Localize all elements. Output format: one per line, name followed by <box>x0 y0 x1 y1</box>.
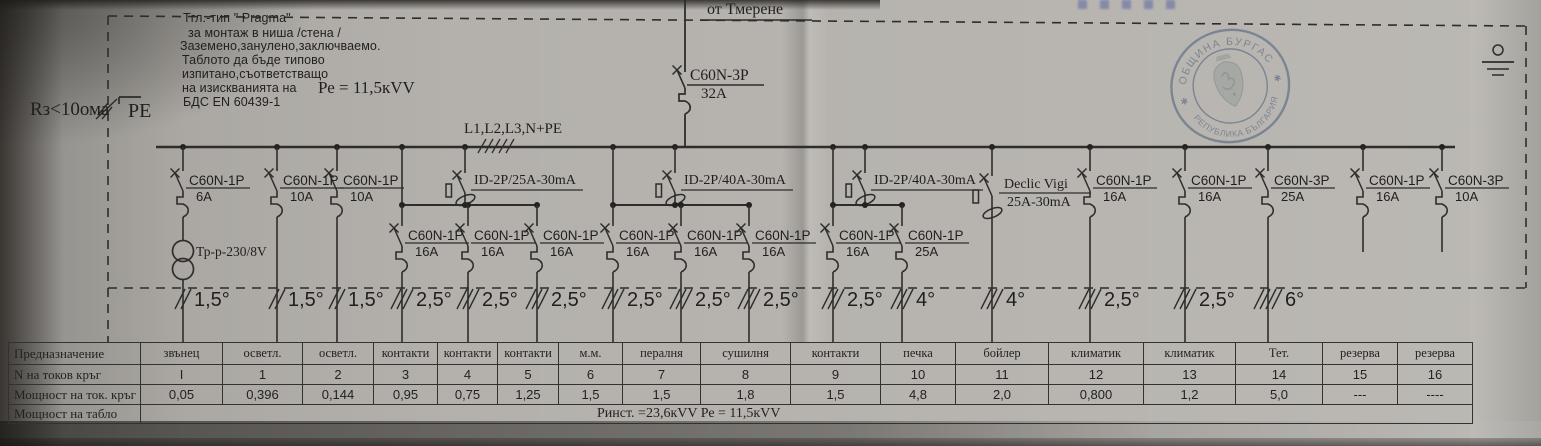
breaker-thermal-element <box>331 191 342 217</box>
table-circuit-number-cell: 16 <box>1398 365 1473 385</box>
table-row: Предназначениезвънецосветл.осветл.контак… <box>9 343 1473 365</box>
wire-section-hatch <box>526 289 536 309</box>
table-purpose-cell: бойлер <box>956 343 1049 365</box>
transformer-label: Тр-р-230/8V <box>196 245 267 259</box>
table-circuit-number-cell: 13 <box>1144 365 1236 385</box>
table-purpose-cell: климатик <box>1049 343 1144 365</box>
note-line: Таблото да бъде типово <box>182 54 325 67</box>
breaker-model-label: C60N-1P <box>839 229 895 243</box>
breaker-switch-diagonal <box>1260 173 1268 191</box>
table-purpose-cell: печка <box>881 343 956 365</box>
breaker-switch-diagonal <box>1434 173 1442 191</box>
table-circuit-number-cell: 2 <box>303 365 374 385</box>
wire-section-hatch <box>822 289 832 309</box>
table-circuit-number-cell: 5 <box>498 365 559 385</box>
vigi-model-label: Declic Vigi <box>1004 178 1068 193</box>
rcd-model-label: ID-2P/40A-30mA <box>684 174 786 189</box>
breaker-switch-diagonal <box>1082 173 1090 191</box>
wire-section-hatch <box>469 289 479 309</box>
breaker-thermal-element <box>743 246 754 272</box>
breaker-switch-diagonal <box>269 173 277 191</box>
breaker-model-label: C60N-3P <box>1274 174 1330 188</box>
table-power-cell: 0,800 <box>1049 385 1144 405</box>
table-row-label: N на токов кръг <box>9 365 141 385</box>
wire-size-label: 2,5° <box>1104 290 1140 311</box>
table-purpose-cell: контакти <box>374 343 438 365</box>
breaker-model-label: C60N-1P <box>408 229 464 243</box>
table-purpose-cell: пералня <box>623 343 701 365</box>
breaker-switch-diagonal <box>605 228 613 246</box>
breaker-rating-label: 6A <box>196 190 212 204</box>
wire-section-hatch <box>891 289 901 309</box>
table-power-cell: 1,5 <box>623 385 701 405</box>
table-circuit-number-cell: 11 <box>956 365 1049 385</box>
wire-section-hatch <box>750 289 760 309</box>
breaker-rating-label: 25A <box>915 245 938 259</box>
breaker-rating-label: 16A <box>626 245 649 259</box>
rcd-test-button <box>973 190 979 203</box>
breaker-thermal-element <box>396 246 407 272</box>
enclosure-border-top <box>108 16 1526 26</box>
wire-section-hatch <box>538 289 548 309</box>
table-power-cell: 0,144 <box>303 385 374 405</box>
breaker-switch-diagonal <box>857 175 865 193</box>
table-circuit-number-cell: 1 <box>223 365 303 385</box>
table-power-cell: 4,8 <box>881 385 956 405</box>
breaker-switch-diagonal <box>825 228 833 246</box>
stamp-star-right: ✱ <box>1273 73 1283 85</box>
table-power-cell: 0,396 <box>223 385 303 405</box>
table-summary-cell: Ринст. =23,6кVV Ре = 11,5кVV <box>141 405 1473 424</box>
table-purpose-cell: осветл. <box>303 343 374 365</box>
table-power-cell: 0,95 <box>374 385 438 405</box>
breaker-switch-diagonal <box>175 173 183 191</box>
scanned-schematic-page: { "incoming_label": "от Тмерене", "main_… <box>0 0 1541 446</box>
breaker-switch-diagonal <box>677 70 685 88</box>
stamp-coat-of-arms <box>1209 52 1249 110</box>
wire-size-label: 2,5° <box>416 290 452 311</box>
breaker-rating-label: 16A <box>1198 190 1221 204</box>
table-purpose-cell: контакти <box>791 343 881 365</box>
breaker-rating-label: 25A <box>1281 190 1304 204</box>
junction-dot <box>672 202 678 208</box>
wire-size-label: 2,5° <box>763 290 799 311</box>
breaker-switch-diagonal <box>457 175 465 193</box>
rcd-model-label: ID-2P/25A-30mA <box>474 174 576 189</box>
wire-size-label: 2,5° <box>847 290 883 311</box>
table-power-cell: 0,05 <box>141 385 223 405</box>
breaker-thermal-element <box>271 191 282 217</box>
breaker-rating-label: 10A <box>350 190 373 204</box>
table-circuit-number-cell: 14 <box>1236 365 1323 385</box>
wire-section-hatch <box>602 289 612 309</box>
table-purpose-cell: резерва <box>1323 343 1398 365</box>
table-circuit-number-cell: 3 <box>374 365 438 385</box>
wire-size-label: 1,5° <box>348 290 384 311</box>
table-row: Мощност на ток. кръг0,050,3960,1440,950,… <box>9 385 1473 405</box>
breaker-rating-label: 10A <box>1455 190 1478 204</box>
wire-section-hatch <box>1186 289 1196 309</box>
wire-size-label: 2,5° <box>551 290 587 311</box>
breaker-switch-diagonal <box>667 175 675 193</box>
round-stamp: ОБЩИНА БУРГАС РЕПУБЛИКА БЪЛГАРИЯ ✱ ✱ <box>1162 18 1298 152</box>
table-power-cell: 1,5 <box>559 385 623 405</box>
wire-size-label: 4° <box>916 290 935 311</box>
breaker-thermal-element <box>177 191 188 217</box>
breaker-thermal-element <box>1084 191 1095 217</box>
rcd-test-button <box>846 184 852 197</box>
breaker-model-label: C60N-1P <box>474 229 530 243</box>
table-purpose-cell: резерва <box>1398 343 1473 365</box>
breaker-thermal-element <box>1357 191 1368 217</box>
wire-size-label: 2,5° <box>482 290 518 311</box>
rcd-model-label: ID-2P/40A-30mA <box>874 174 976 189</box>
breaker-thermal-element <box>531 246 542 272</box>
breaker-rating-label: 16A <box>550 245 573 259</box>
wire-section-hatch <box>1254 289 1264 309</box>
breaker-rating-label: 16A <box>762 245 785 259</box>
breaker-model-label: C60N-1P <box>755 229 811 243</box>
breaker-rating-label: 16A <box>846 245 869 259</box>
table-power-cell: 1,5 <box>791 385 881 405</box>
breaker-switch-diagonal <box>394 228 402 246</box>
table-power-cell: 2,0 <box>956 385 1049 405</box>
breaker-thermal-element <box>896 246 907 272</box>
table-power-cell: 0,75 <box>438 385 498 405</box>
wire-section-hatch <box>457 289 467 309</box>
vigi-rating-label: 25A-30mA <box>1007 196 1071 211</box>
table-purpose-cell: Тет. <box>1236 343 1323 365</box>
main-breaker-rating-label: 32A <box>701 87 727 103</box>
wire-section-hatch <box>614 289 624 309</box>
wire-section-hatch <box>981 289 991 309</box>
wire-section-hatch <box>738 289 748 309</box>
breaker-thermal-element <box>462 246 473 272</box>
main-breaker-model-label: C60N-3P <box>690 68 749 84</box>
breaker-rating-label: 10A <box>290 190 313 204</box>
table-row: N на токов кръгI12345678910111213141516 <box>9 365 1473 385</box>
wire-section-hatch <box>1079 289 1089 309</box>
wire-section-hatch <box>903 289 913 309</box>
busbar-label: L1,L2,L3,N+PE <box>464 122 562 138</box>
breaker-model-label: C60N-1P <box>343 174 399 188</box>
pe-terminal-label: PE <box>128 101 151 122</box>
breaker-rating-label: 16A <box>481 245 504 259</box>
wire-section-hatch <box>670 289 680 309</box>
breaker-rating-label: 16A <box>1376 190 1399 204</box>
table-row-label: Мощност на табло <box>9 405 141 424</box>
table-row: Мощност на таблоРинст. =23,6кVV Ре = 11,… <box>9 405 1473 424</box>
table-row-label: Мощност на ток. кръг <box>9 385 141 405</box>
wire-size-label: 2,5° <box>695 290 731 311</box>
circuit-table: Предназначениезвънецосветл.осветл.контак… <box>8 342 1473 424</box>
table-circuit-number-cell: 7 <box>623 365 701 385</box>
wire-section-hatch <box>391 289 401 309</box>
rcd-test-button <box>446 184 452 197</box>
table-power-cell: 1,8 <box>701 385 791 405</box>
wire-section-hatch <box>1091 289 1101 309</box>
breaker-thermal-element <box>679 88 690 114</box>
table-purpose-cell: климатик <box>1144 343 1236 365</box>
wire-size-label: 2,5° <box>1199 290 1235 311</box>
wire-size-label: 4° <box>1006 290 1025 311</box>
incoming-feeder-label: от Тмерене <box>707 2 783 19</box>
table-circuit-number-cell: I <box>141 365 223 385</box>
note-line: Заземено,занулено,заключваемо. <box>180 40 381 53</box>
wire-section-hatch <box>682 289 692 309</box>
table-circuit-number-cell: 12 <box>1049 365 1144 385</box>
breaker-switch-diagonal <box>1177 173 1185 191</box>
table-purpose-cell: осветл. <box>223 343 303 365</box>
breaker-model-label: C60N-1P <box>1096 174 1152 188</box>
junction-dot <box>862 202 868 208</box>
note-line: изпитано,съответстващо <box>182 68 328 81</box>
table-power-cell: ---- <box>1398 385 1473 405</box>
breaker-rating-label: 16A <box>1103 190 1126 204</box>
table-circuit-number-cell: 15 <box>1323 365 1398 385</box>
breaker-thermal-element <box>1262 191 1273 217</box>
breaker-model-label: C60N-1P <box>1191 174 1247 188</box>
circuit-table-grid: Предназначениезвънецосветл.осветл.контак… <box>8 342 1473 424</box>
table-purpose-cell: контакти <box>438 343 498 365</box>
breaker-thermal-element <box>1179 191 1190 217</box>
earth-resistance-label: Rз<10ома <box>30 100 109 120</box>
breaker-model-label: C60N-1P <box>619 229 675 243</box>
breaker-model-label: C60N-1P <box>543 229 599 243</box>
wire-size-label: 2,5° <box>627 290 663 311</box>
table-circuit-number-cell: 6 <box>559 365 623 385</box>
table-purpose-cell: контакти <box>498 343 559 365</box>
breaker-thermal-element <box>827 246 838 272</box>
note-line: Тгл.-тип " Pragma" <box>183 12 291 25</box>
breaker-model-label: C60N-1P <box>1369 174 1425 188</box>
table-row-label: Предназначение <box>9 343 141 365</box>
table-circuit-number-cell: 9 <box>791 365 881 385</box>
wire-section-hatch <box>993 289 1003 309</box>
pe-power-note: Ре = 11,5кVV <box>318 79 415 97</box>
breaker-thermal-element <box>675 246 686 272</box>
breaker-model-label: C60N-1P <box>908 229 964 243</box>
breaker-model-label: C60N-3P <box>1448 174 1504 188</box>
breaker-thermal-element <box>1436 191 1447 217</box>
breaker-rating-label: 16A <box>415 245 438 259</box>
table-power-cell: --- <box>1323 385 1398 405</box>
breaker-model-label: C60N-1P <box>687 229 743 243</box>
wire-size-label: 1,5° <box>288 290 324 311</box>
table-power-cell: 5,0 <box>1236 385 1323 405</box>
table-power-cell: 1,2 <box>1144 385 1236 405</box>
wire-section-hatch <box>1272 289 1282 309</box>
breaker-model-label: C60N-1P <box>283 174 339 188</box>
note-line: БДС EN 60439-1 <box>183 96 280 109</box>
breaker-thermal-element <box>607 246 618 272</box>
rcd-test-button <box>656 184 662 197</box>
breaker-switch-diagonal <box>984 178 992 196</box>
earth-symbol-circle <box>1493 45 1503 55</box>
stamp-star-left: ✱ <box>1180 96 1190 108</box>
wire-section-hatch <box>1174 289 1184 309</box>
note-line: на изискванията на <box>182 82 297 95</box>
table-circuit-number-cell: 4 <box>438 365 498 385</box>
table-circuit-number-cell: 10 <box>881 365 956 385</box>
breaker-switch-diagonal <box>1355 173 1363 191</box>
wire-section-hatch <box>403 289 413 309</box>
table-purpose-cell: звънец <box>141 343 223 365</box>
breaker-rating-label: 16A <box>694 245 717 259</box>
wire-size-label: 1,5° <box>194 290 230 311</box>
table-circuit-number-cell: 8 <box>701 365 791 385</box>
wire-size-label: 6° <box>1285 290 1304 311</box>
table-power-cell: 1,25 <box>498 385 559 405</box>
table-purpose-cell: сушилня <box>701 343 791 365</box>
breaker-model-label: C60N-1P <box>189 174 245 188</box>
wire-section-hatch <box>834 289 844 309</box>
table-purpose-cell: м.м. <box>559 343 623 365</box>
